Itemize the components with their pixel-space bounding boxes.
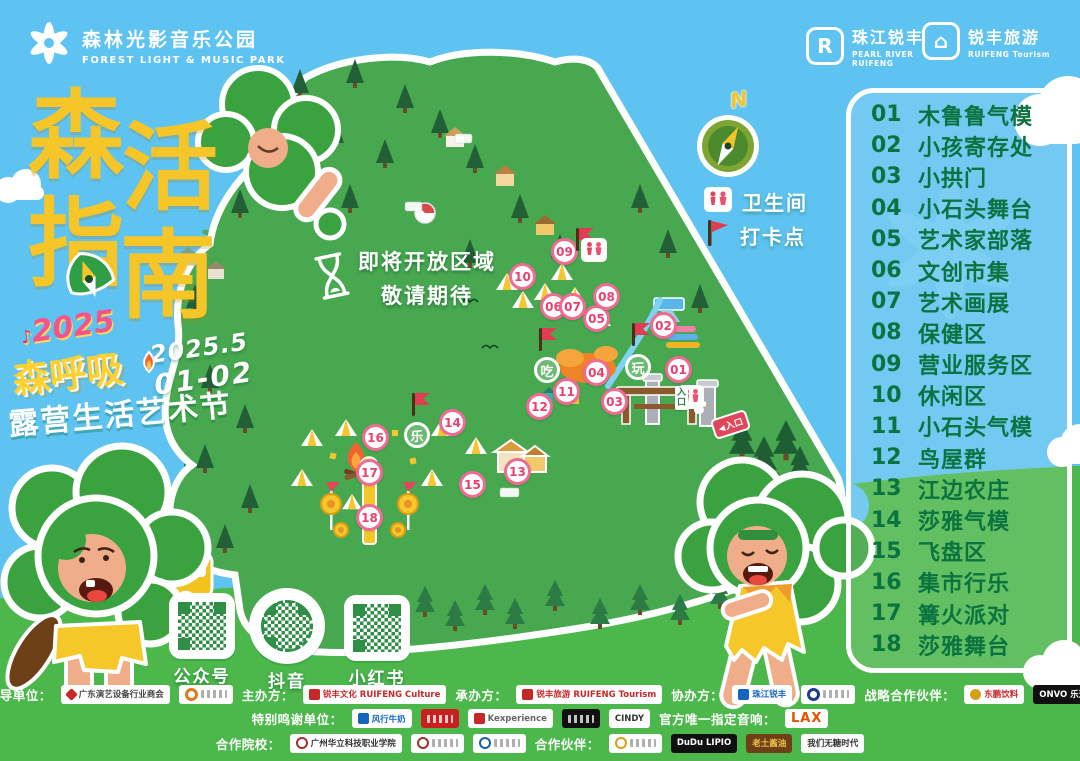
sponsor-group-label: 协办方： [671, 685, 723, 704]
sponsor-logo: 我们无糖时代 [801, 734, 864, 753]
legend-panel: 01木鲁鲁气模02小孩寄存处03小拱门04小石头舞台05艺术家部落06文创市集0… [846, 88, 1072, 673]
brand-ruifeng-tourism: ⌂ 锐丰旅游 RUIFENG Tourism [922, 22, 1050, 60]
legend-item-13: 13江边农庄 [871, 473, 1067, 504]
compass-dial-icon [694, 112, 762, 180]
sponsors-section: 指导单位：广东演艺设备行业商会主办方：锐丰文化 RUIFENG Culture承… [0, 676, 1080, 761]
legend-item-num: 05 [871, 227, 905, 252]
sponsor-logo: Kexperience [468, 709, 553, 728]
red-diamond-icon [65, 688, 78, 701]
legend-item-num: 08 [871, 320, 905, 345]
checkin-flag-icon [704, 219, 730, 251]
legend-item-num: 02 [871, 133, 905, 158]
sponsor-group-label: 合作院校： [216, 734, 281, 753]
orange-ring-icon [185, 688, 198, 701]
sponsor-logo: 广州华立科技职业学院 [290, 734, 402, 753]
restroom-icon [704, 187, 732, 216]
sponsor-logo [562, 709, 600, 728]
compass-north-label: N [728, 87, 749, 114]
sponsor-logo [179, 685, 233, 704]
legend-item-04: 04小石头舞台 [871, 193, 1067, 224]
sponsor-logo: ONVO 乐道 [1033, 685, 1080, 704]
title-char-4: 南 [120, 228, 216, 324]
compass: N [694, 92, 774, 184]
map-key: 卫生间 打卡点 [704, 184, 808, 252]
crest-blue-icon [479, 737, 491, 749]
legend-item-label: 艺术家部落 [918, 223, 1033, 255]
sponsor-logo: 锐丰文化 RUIFENG Culture [303, 685, 447, 704]
sponsor-group-label: 特别鸣谢单位： [252, 709, 343, 728]
sponsor-logo: 东鹏饮料 [964, 685, 1024, 704]
legend-item-03: 03小拱门 [871, 161, 1067, 192]
poster: 森林光影音乐公园 FOREST LIGHT & MUSIC PARK R 珠江锐… [0, 0, 1080, 761]
leaf-compass-icon [58, 248, 120, 314]
red-square-icon [522, 689, 533, 700]
legend-item-01: 01木鲁鲁气模 [871, 99, 1067, 130]
legend-item-num: 17 [871, 601, 905, 626]
sponsor-logo [609, 734, 662, 753]
brand2-name: 锐丰旅游 [968, 24, 1050, 48]
legend-item-num: 15 [871, 539, 905, 564]
ruifeng-r-icon: R [806, 27, 844, 65]
coming-soon-line1: 即将开放区域 [358, 246, 496, 276]
map-key-restroom: 卫生间 [704, 184, 808, 218]
legend-item-num: 04 [871, 196, 905, 221]
ruifeng-tourism-icon: ⌂ [922, 22, 960, 60]
sponsor-group-label: 战略合作伙伴： [864, 685, 955, 704]
blue-box-icon [358, 713, 369, 724]
legend-item-num: 14 [871, 508, 905, 533]
legend-item-label: 保健区 [918, 317, 987, 349]
legend-item-11: 11小石头气模 [871, 411, 1067, 442]
sponsor-group-label: 承办方： [455, 685, 507, 704]
legend-panel-items: 01木鲁鲁气模02小孩寄存处03小拱门04小石头舞台05艺术家部落06文创市集0… [871, 99, 1067, 660]
legend-item-18: 18莎雅舞台 [871, 629, 1067, 660]
sponsor-logo: CINDY [609, 709, 650, 728]
brand1-sub1: PEARL RIVER [852, 50, 913, 59]
legend-item-num: 01 [871, 102, 905, 127]
legend-item-14: 14莎雅气模 [871, 504, 1067, 535]
legend-item-label: 营业服务区 [918, 348, 1033, 380]
sponsor-logo: DuDu LIPIO [671, 734, 737, 753]
legend-item-num: 03 [871, 164, 905, 189]
brand1-name: 珠江锐丰 [852, 24, 924, 48]
sponsor-logo [801, 685, 855, 704]
sponsor-group-label: 合作伙伴： [535, 734, 600, 753]
brand-pearl-river-ruifeng: R 珠江锐丰 PEARL RIVER RUIFENG [806, 24, 924, 68]
legend-item-label: 休闲区 [918, 379, 987, 411]
gold-ring-icon [615, 737, 627, 749]
brand1-sub2: RUIFENG [852, 59, 894, 68]
legend-item-09: 09营业服务区 [871, 349, 1067, 380]
legend-item-05: 05艺术家部落 [871, 224, 1067, 255]
qr-xiaohongshu: 小红书 [334, 595, 420, 689]
park-name: 森林光影音乐公园 [82, 25, 285, 52]
legend-item-label: 小拱门 [918, 161, 987, 193]
legend-item-num: 11 [871, 414, 905, 439]
legend-item-label: 文创市集 [918, 255, 1010, 287]
legend-item-16: 16集市行乐 [871, 567, 1067, 598]
entrance-sign: 入口 [675, 386, 688, 410]
qr-xiaohongshu-code [344, 595, 410, 661]
park-flower-icon [26, 20, 72, 70]
legend-item-10: 10休闲区 [871, 380, 1067, 411]
blue-ring-icon [807, 688, 820, 701]
legend-item-06: 06文创市集 [871, 255, 1067, 286]
qr-douyin-code [249, 588, 325, 664]
legend-item-label: 艺术画展 [918, 286, 1010, 318]
flame-icon [138, 350, 160, 384]
legend-item-num: 09 [871, 352, 905, 377]
park-logo: 森林光影音乐公园 FOREST LIGHT & MUSIC PARK [26, 20, 285, 70]
coming-soon-note: 即将开放区域 敬请期待 [314, 246, 496, 310]
red-r-icon [474, 713, 485, 724]
map-key-checkin-label: 打卡点 [740, 221, 806, 250]
sponsor-row-2: 特别鸣谢单位：风行牛奶KexperienceCINDY官方唯一指定音响：LAX [6, 709, 1074, 728]
legend-item-15: 15飞盘区 [871, 536, 1067, 567]
legend-item-num: 16 [871, 570, 905, 595]
legend-item-num: 07 [871, 289, 905, 314]
legend-item-02: 02小孩寄存处 [871, 130, 1067, 161]
legend-item-label: 鸟屋群 [918, 442, 987, 474]
legend-item-07: 07艺术画展 [871, 286, 1067, 317]
legend-item-label: 小石头舞台 [918, 192, 1033, 224]
legend-item-label: 小石头气模 [918, 410, 1033, 442]
legend-item-label: 篝火派对 [918, 598, 1010, 630]
legend-item-num: 10 [871, 383, 905, 408]
crest-red-icon [296, 737, 308, 749]
legend-item-label: 飞盘区 [918, 535, 987, 567]
map-key-checkin: 打卡点 [704, 218, 808, 252]
sponsor-logo [473, 734, 526, 753]
sponsor-logo: 风行牛奶 [352, 709, 412, 728]
gold-badge-icon [970, 689, 981, 700]
sponsor-group-label: 指导单位： [0, 685, 52, 704]
sponsor-logo: 锐丰旅游 RUIFENG Tourism [516, 685, 662, 704]
legend-item-label: 木鲁鲁气模 [918, 99, 1033, 131]
legend-item-num: 18 [871, 632, 905, 657]
legend-item-08: 08保健区 [871, 317, 1067, 348]
sponsor-row-1: 指导单位：广东演艺设备行业商会主办方：锐丰文化 RUIFENG Culture承… [6, 685, 1074, 704]
legend-item-label: 莎雅气模 [918, 504, 1010, 536]
legend-item-label: 江边农庄 [918, 473, 1010, 505]
title-char-2: 活 [122, 120, 218, 216]
legend-item-label: 小孩寄存处 [918, 130, 1033, 162]
sponsor-logo: LAX [785, 709, 828, 728]
brand2-sub: RUIFENG Tourism [968, 50, 1050, 59]
legend-item-num: 13 [871, 476, 905, 501]
legend-item-num: 06 [871, 258, 905, 283]
hourglass-icon [314, 252, 350, 304]
map-key-restroom-label: 卫生间 [742, 187, 808, 216]
qr-wechat-code [169, 593, 235, 659]
title-char-1: 森 [28, 88, 124, 184]
park-name-en: FOREST LIGHT & MUSIC PARK [82, 55, 285, 66]
sponsor-logo: 广东演艺设备行业商会 [61, 685, 170, 704]
sponsor-logo [411, 734, 464, 753]
legend-item-label: 莎雅舞台 [918, 629, 1010, 661]
sponsor-logo: 珠江锐丰 [732, 685, 792, 704]
sponsor-group-label: 主办方： [242, 685, 294, 704]
legend-item-label: 集市行乐 [918, 566, 1010, 598]
legend-item-num: 12 [871, 445, 905, 470]
sponsor-group-label: 官方唯一指定音响： [659, 709, 776, 728]
blue-r-icon [738, 689, 749, 700]
sponsor-row-3: 合作院校：广州华立科技职业学院合作伙伴：DuDu LIPIO老土酱油我们无糖时代 [6, 734, 1074, 753]
sponsor-logo [421, 709, 459, 728]
red-square-icon [309, 689, 320, 700]
coming-soon-line2: 敬请期待 [358, 280, 496, 310]
legend-item-12: 12鸟屋群 [871, 442, 1067, 473]
sponsor-logo: 老土酱油 [746, 734, 792, 753]
legend-item-17: 17篝火派对 [871, 598, 1067, 629]
crest-red-icon [417, 737, 429, 749]
qr-wechat: 公众号 [157, 593, 247, 687]
